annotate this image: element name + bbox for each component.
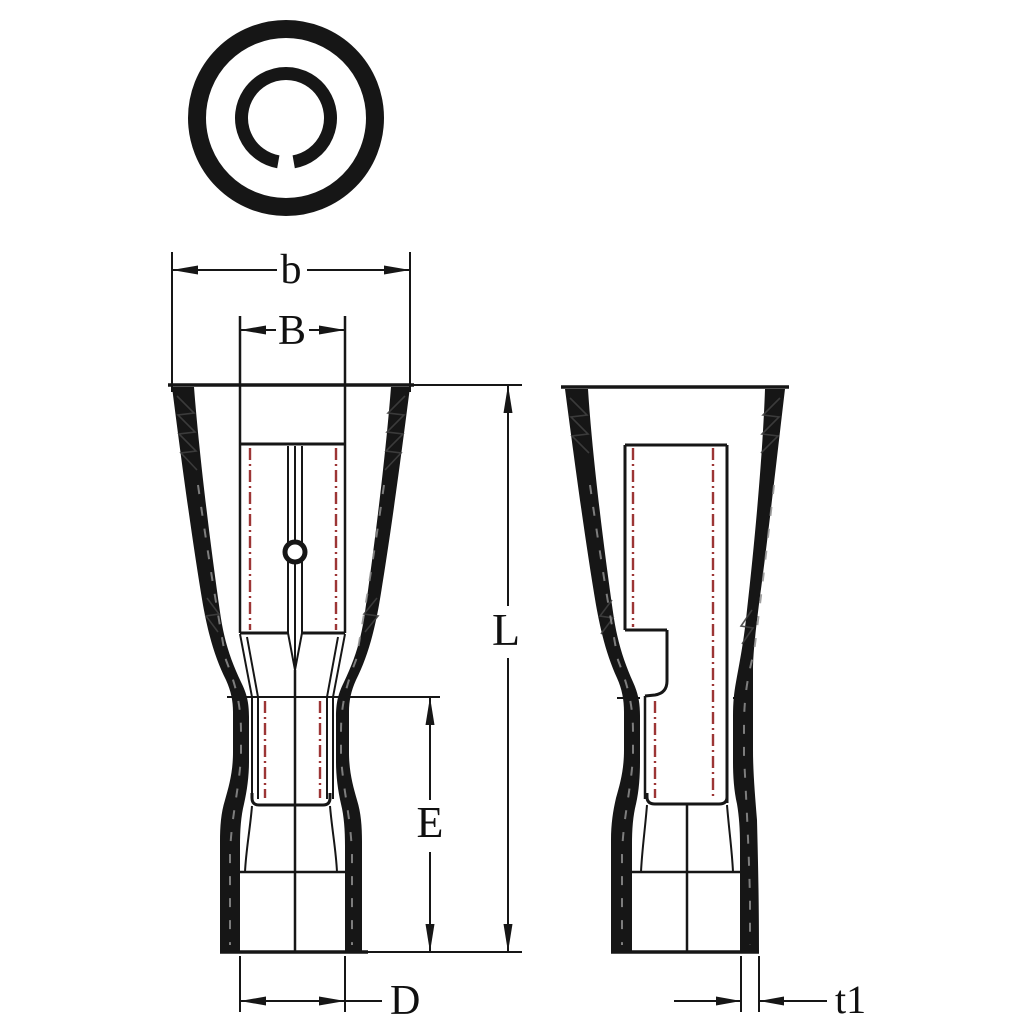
dim-D-arrow-left — [240, 997, 266, 1006]
dim-E-label: E — [417, 798, 444, 847]
inner-barrel-ring — [242, 73, 331, 161]
dim-E-arrow-top — [426, 697, 435, 725]
dimension-E: E — [417, 697, 444, 952]
dim-D-arrow-right — [319, 997, 345, 1006]
dim-E-arrow-bottom — [426, 924, 435, 952]
side-view — [561, 387, 789, 952]
dim-B-arrow-left — [240, 326, 266, 335]
sleeve-side-lines — [240, 316, 345, 633]
dim-b-label: b — [281, 247, 302, 293]
funnel-slants — [240, 634, 345, 697]
dim-t1-arrow-left — [716, 997, 741, 1006]
bore-curves — [245, 806, 337, 872]
dim-b-arrow-left — [172, 266, 198, 275]
dim-L-arrow-top — [504, 385, 513, 413]
dimension-D: D — [240, 956, 420, 1024]
metal-left-edge-step — [625, 445, 667, 696]
front-view — [168, 316, 440, 952]
side-left-wall — [565, 389, 640, 952]
dimple-circle-icon — [285, 542, 305, 562]
hidden-lines-neck — [265, 701, 320, 798]
front-right-wall — [336, 387, 410, 952]
dimension-t1: t1 — [674, 956, 866, 1022]
dim-t1-arrow-right — [759, 997, 784, 1006]
side-barrel-bottom-edge — [647, 793, 727, 804]
dim-b-arrow-right — [384, 266, 410, 275]
side-right-wall — [733, 389, 785, 952]
top-view — [197, 29, 375, 207]
terminal-technical-drawing: b B L E D t1 — [0, 0, 1024, 1024]
dim-B-label: B — [278, 308, 306, 354]
barrel-bottom-edge — [252, 793, 330, 805]
front-left-wall — [172, 387, 249, 952]
dim-D-label: D — [390, 978, 420, 1024]
dim-L-arrow-bottom — [504, 924, 513, 952]
dim-L-label: L — [492, 604, 520, 655]
dim-t1-extension-lines — [741, 956, 759, 1012]
hidden-lines-upper — [250, 448, 336, 630]
outer-insulation-ring — [197, 29, 375, 207]
dim-B-arrow-right — [319, 326, 345, 335]
dimension-B: B — [240, 308, 345, 354]
dim-t1-label: t1 — [835, 977, 866, 1022]
